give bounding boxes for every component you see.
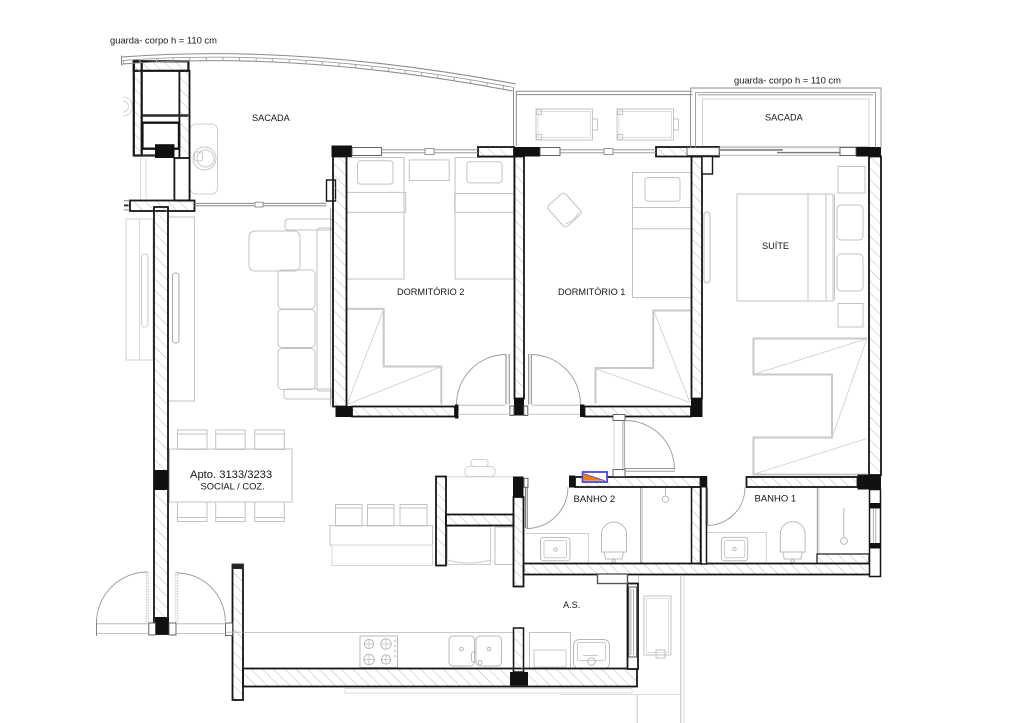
svg-text:guarda- corpo h = 110 cm: guarda- corpo h = 110 cm — [110, 35, 217, 46]
svg-text:SUÍTE: SUÍTE — [762, 241, 789, 251]
svg-text:A.S.: A.S. — [563, 600, 580, 610]
svg-text:BANHO 1: BANHO 1 — [755, 494, 797, 505]
svg-text:Apto. 3133/3233: Apto. 3133/3233 — [190, 469, 272, 481]
svg-text:guarda- corpo h = 110 cm: guarda- corpo h = 110 cm — [734, 75, 841, 86]
svg-text:DORMITÓRIO 1: DORMITÓRIO 1 — [558, 287, 625, 297]
svg-text:SACADA: SACADA — [252, 113, 291, 123]
svg-text:DORMITÓRIO 2: DORMITÓRIO 2 — [397, 287, 464, 297]
svg-text:SACADA: SACADA — [765, 113, 804, 123]
svg-text:SOCIAL / COZ.: SOCIAL / COZ. — [201, 481, 265, 492]
svg-text:BANHO 2: BANHO 2 — [574, 494, 616, 505]
